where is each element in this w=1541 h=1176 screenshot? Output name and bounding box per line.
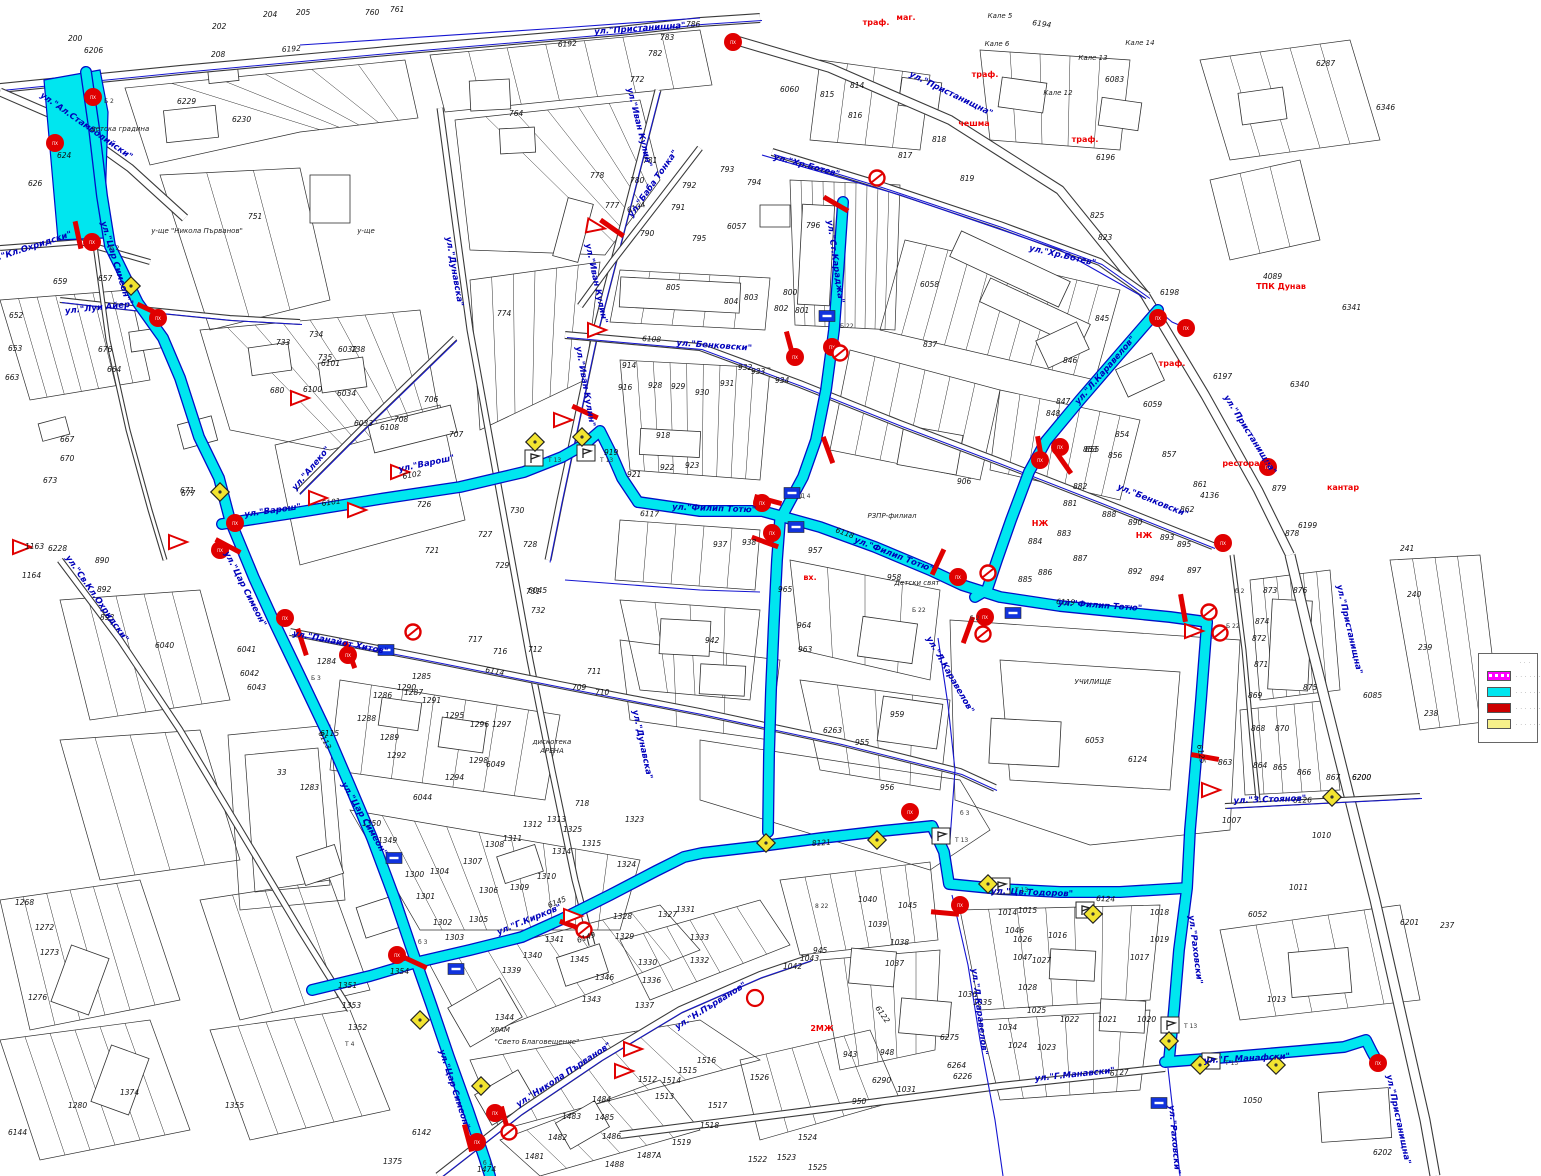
parcel-number: 1324	[617, 860, 636, 869]
parcel-number: 782	[648, 49, 663, 58]
parcel-number: 1340	[523, 951, 542, 960]
parcel-number: 6085	[1363, 691, 1382, 700]
parcel-number: 1353	[342, 1001, 361, 1010]
parcel-number: 1328	[613, 912, 632, 921]
parcel-number: 938	[742, 538, 757, 547]
parcel-number: 890	[1128, 518, 1143, 527]
parcel-number: 819	[960, 174, 975, 183]
parcel-number: 706	[424, 395, 439, 404]
parcel-number: 6346	[1376, 103, 1395, 112]
parcel-number: 887	[1073, 554, 1088, 563]
parcel-number: 870	[1275, 724, 1290, 733]
parcel-number: 793	[720, 165, 735, 174]
parcel-number: 1301	[416, 892, 435, 901]
parcel-number: 718	[575, 799, 590, 808]
building-footprint	[1318, 1088, 1391, 1143]
parcel-number: 6341	[1342, 303, 1361, 312]
parcel-number: 929	[671, 382, 686, 391]
parcel-number: 963	[798, 645, 813, 654]
annotation-note: б 2	[110, 245, 120, 252]
parcel-number: 1276	[28, 993, 47, 1002]
parcel-number: 893	[1160, 533, 1175, 542]
parcel-number: 882	[1073, 482, 1088, 491]
parcel-number: 933	[751, 367, 766, 376]
pipe-id-label: 8121	[812, 838, 832, 848]
building-footprint	[469, 79, 511, 111]
parcel-number: 734	[309, 330, 324, 339]
annotation-note: Т 13	[954, 837, 968, 844]
parcel-number: 730	[510, 506, 525, 515]
parcel-number: 1481	[525, 1152, 544, 1161]
pipe-id-label: 6201	[1400, 918, 1419, 927]
legend-label: · · · · · ·	[1516, 706, 1541, 711]
hydrant-label: ПХ	[474, 1140, 480, 1145]
hydrant-label: ПХ	[1155, 316, 1161, 321]
parcel-number: 1524	[798, 1133, 817, 1142]
parcel-number: 6040	[155, 641, 174, 650]
parcel-number: 875	[1303, 683, 1318, 692]
parcel-number: 772	[630, 75, 645, 84]
parcel-number: 1285	[412, 672, 431, 681]
parcel-number: 792	[682, 181, 697, 190]
parcel-number: 931	[720, 379, 734, 388]
annotation-note: б 2	[970, 615, 980, 622]
diamond-dot	[764, 841, 767, 844]
parcel-number: 6053	[1085, 736, 1104, 745]
poi-red-label: траф.	[863, 18, 890, 27]
parcel-number: 921	[627, 470, 641, 479]
parcel-number: 872	[1252, 634, 1267, 643]
parcel-number: 200	[68, 34, 83, 43]
parcel-number: 1341	[545, 935, 564, 944]
poi-label: Кале 14	[1125, 39, 1154, 47]
parcel-number: 1021	[1098, 1015, 1117, 1024]
pipe-id-label: 6108	[642, 334, 662, 344]
poi-label: у-ще "Никола Първанов"	[150, 227, 243, 235]
building-footprint	[899, 998, 952, 1037]
pipe-id-label: 6196	[1096, 153, 1115, 162]
parcel-number: 1037	[885, 959, 904, 968]
ring-marker[interactable]	[747, 990, 763, 1006]
parcel-number: 1017	[1130, 953, 1149, 962]
legend-swatch	[1487, 703, 1511, 713]
parcel-number: 6197	[1213, 372, 1232, 381]
pipe-id-label: 6192	[282, 44, 302, 54]
parcel-number: 774	[497, 309, 512, 318]
annotation-note: б 3	[960, 810, 970, 817]
pipe-id-label: 6124	[1096, 894, 1116, 904]
parcel-number: 726	[417, 500, 432, 509]
pipe-id-label: 6198	[1160, 288, 1179, 297]
parcel-number: 1516	[697, 1056, 716, 1065]
poi-red-label: вх.	[803, 573, 816, 582]
parcel-number: 6144	[8, 1128, 27, 1137]
parcel-number: 6226	[953, 1072, 972, 1081]
legend-row: · · · · · ·	[1487, 703, 1531, 713]
poi-red-label: кантар	[1327, 483, 1359, 492]
parcel-number: 6057	[727, 222, 746, 231]
parcel-number: 1327	[658, 910, 677, 919]
parcel-number: 1025	[1027, 1006, 1046, 1015]
building-footprint	[699, 664, 746, 696]
parcel-number: 805	[666, 283, 681, 292]
parcel-number: 1022	[1060, 1015, 1079, 1024]
parcel-number: 780	[630, 176, 645, 185]
parcel-number: 1486	[602, 1132, 621, 1141]
parcel-number: 942	[705, 636, 720, 645]
diamond-dot	[986, 882, 989, 885]
parcel-number: 721	[425, 546, 439, 555]
parcel-number: 1488	[605, 1160, 624, 1169]
poi-red-label: НЖ	[1032, 519, 1049, 528]
parcel-number: 663	[5, 373, 20, 382]
parcel-number: 922	[660, 463, 675, 472]
parcel-number: 791	[671, 203, 685, 212]
parcel-number: 6060	[780, 85, 799, 94]
parcel-number: 914	[622, 361, 637, 370]
parcel-number: 732	[531, 606, 546, 615]
parcel-number: 959	[890, 710, 905, 719]
parcel-number: 1330	[638, 958, 657, 967]
parcel-number: 1296	[470, 720, 489, 729]
pipe-id-label: 6192	[558, 39, 578, 49]
parcel-number: 1345	[570, 955, 589, 964]
parcel-number: 894	[1150, 574, 1165, 583]
parcel-number: 6041	[237, 645, 256, 654]
parcel-number: 1007	[1222, 816, 1241, 825]
building-footprint	[1098, 97, 1142, 130]
parcel-number: 783	[660, 33, 675, 42]
legend-swatch	[1487, 671, 1511, 681]
poi-label: Кале 12	[1043, 89, 1073, 97]
poi-red-label: НЖ	[1136, 531, 1153, 540]
parcel-number: 1290	[397, 683, 416, 692]
parcel-number: 626	[28, 179, 43, 188]
parcel-number: 818	[932, 135, 947, 144]
parcel-number: 240	[1407, 590, 1422, 599]
cadastral-map[interactable]: ПХПХПХПХПХПХПХПХПХПХПХПХПХПХПХПХПХПХПХПХ…	[0, 0, 1541, 1176]
parcel-number: 928	[648, 381, 663, 390]
building-footprint	[760, 205, 790, 227]
annotation-note: Т 13	[1224, 1060, 1238, 1067]
parcel-number: 6108	[380, 423, 399, 432]
parcel-number: 884	[1028, 537, 1043, 546]
hydrant-label: ПХ	[730, 40, 736, 45]
parcel-number: 865	[1273, 763, 1288, 772]
building-footprint	[1049, 949, 1096, 981]
parcel-number: 1329	[615, 932, 634, 941]
diamond-dot	[129, 284, 132, 287]
legend-label: · · · · · ·	[1516, 722, 1541, 727]
hydrant-label: ПХ	[1183, 326, 1189, 331]
parcel-number: 6287	[1316, 59, 1335, 68]
pipe-id-label: 6117	[640, 509, 660, 519]
hydrant-label: ПХ	[769, 531, 775, 536]
parcel-number: 6124	[1128, 755, 1147, 764]
parcel-number: 1484	[592, 1095, 611, 1104]
parcel-number: 886	[1038, 568, 1053, 577]
pipe-id-label: 6200	[1352, 773, 1371, 782]
parcel-number: 845	[1095, 314, 1110, 323]
parcel-number: 204	[263, 10, 278, 19]
poi-red-label: ТПК Дунав	[1256, 282, 1306, 291]
parcel-number: 934	[775, 376, 790, 385]
parcel-number: 1028	[1018, 983, 1037, 992]
parcel-number: 1308	[485, 840, 504, 849]
parcel-number: 965	[778, 585, 793, 594]
parcel-number: 871	[1254, 660, 1268, 669]
parcel-number: 906	[957, 477, 972, 486]
hydrant-label: ПХ	[217, 548, 223, 553]
parcel-number: 861	[1193, 480, 1207, 489]
parcel-number: 667	[60, 435, 75, 444]
parcel-number: 881	[1063, 499, 1077, 508]
parcel-number: 1331	[676, 905, 695, 914]
parcel-number: 1375	[383, 1157, 402, 1166]
parcel-number: 727	[478, 530, 493, 539]
annotation-note: Т 4	[344, 1041, 355, 1048]
parcel-number: 711	[587, 667, 601, 676]
parcel-number: 943	[843, 1050, 858, 1059]
poi-red-label: маг.	[896, 13, 915, 22]
parcel-number: 6275	[940, 1033, 959, 1042]
parcel-number: 1163	[25, 542, 44, 551]
hydrant-label: ПХ	[492, 1111, 498, 1116]
parcel-number: 1313	[547, 815, 566, 824]
parcel-number: 1303	[445, 933, 464, 942]
parcel-number: 657	[98, 274, 113, 283]
parcel-number: 1352	[348, 1023, 367, 1032]
parcel-number: 867	[1326, 773, 1341, 782]
parcel-number: 1286	[373, 691, 392, 700]
parcel-number: 1288	[357, 714, 376, 723]
parcel-number: 1312	[523, 820, 542, 829]
diamond-dot	[580, 435, 583, 438]
parcel-number: 795	[692, 234, 707, 243]
parcel-number: 1304	[430, 867, 449, 876]
parcel-number: 956	[880, 783, 895, 792]
parcel-number: 6042	[240, 669, 259, 678]
parcel-number: 6033	[354, 419, 373, 428]
parcel-number: 1023	[1037, 1043, 1056, 1052]
poi-label: РЗПР-филиал	[867, 512, 917, 520]
diamond-dot	[1167, 1039, 1170, 1042]
building-footprint	[499, 127, 535, 154]
parcel-number: 716	[493, 647, 508, 656]
building-footprint	[877, 696, 943, 749]
parcel-number: 955	[855, 738, 870, 747]
hydrant-label: ПХ	[1057, 445, 1063, 450]
parcel-number: 804	[724, 297, 739, 306]
annotation-note: б 3	[418, 939, 428, 946]
annotation-note: б 2	[1235, 588, 1245, 595]
parcel-number: 1300	[405, 870, 424, 879]
parcel-number: 1482	[548, 1133, 567, 1142]
parcel-number: 1047	[1013, 953, 1032, 962]
parcel-number: 4136	[1200, 491, 1219, 500]
diamond-dot	[479, 1084, 482, 1087]
parcel-number: 885	[1018, 575, 1033, 584]
parcel-number: 863	[1218, 758, 1233, 767]
parcel-number: 652	[9, 311, 24, 320]
parcel-number: 817	[898, 151, 913, 160]
hydrant-label: ПХ	[982, 615, 988, 620]
parcel-number: 1019	[1150, 935, 1169, 944]
parcel-number: 1027	[1032, 956, 1051, 965]
poi-label: Детски свят	[894, 579, 941, 587]
parcel-number: 1302	[433, 918, 452, 927]
parcel-number: 6264	[947, 1061, 966, 1070]
parcel-number: 1046	[1005, 926, 1024, 935]
parcel-number: 825	[1090, 211, 1105, 220]
hydrant-label: ПХ	[345, 653, 351, 658]
parcel-number: 709	[572, 683, 587, 692]
parcel-number: 1018	[1150, 908, 1169, 917]
poi-label: Кале 13	[1078, 54, 1107, 62]
parcel-number: 680	[270, 386, 285, 395]
building-footprint	[163, 105, 218, 142]
parcel-number: 1273	[40, 948, 59, 957]
parcel-number: 786	[686, 20, 701, 29]
parcel-number: 6142	[412, 1128, 431, 1137]
parcel-number: 857	[1162, 450, 1177, 459]
parcel-number: 237	[1440, 921, 1455, 930]
parcel-number: 874	[1255, 617, 1270, 626]
building-footprint	[659, 619, 711, 657]
parcel-number: 1523	[777, 1153, 796, 1162]
parcel-number: 923	[685, 461, 700, 470]
parcel-number: 1013	[1267, 995, 1286, 1004]
parcel-number: 1272	[35, 923, 54, 932]
parcel-number: 664	[107, 365, 122, 374]
poi-label: УЧИЛИЩЕ	[1075, 678, 1112, 686]
parcel-number: 1015	[1018, 906, 1037, 915]
parcel-number: 1031	[897, 1085, 916, 1094]
parcel-number: 1311	[503, 834, 522, 843]
parcel-number: 837	[923, 340, 938, 349]
parcel-number: 864	[1253, 761, 1268, 770]
hydrant-label: ПХ	[394, 953, 400, 958]
poi-red-label: траф.	[1159, 359, 1186, 368]
parcel-number: 6100	[303, 385, 322, 394]
parcel-number: 848	[1046, 409, 1061, 418]
parcel-number: 1518	[700, 1121, 719, 1130]
parcel-number: 816	[848, 111, 863, 120]
parcel-number: 1309	[510, 883, 529, 892]
parcel-number: 1526	[750, 1073, 769, 1082]
hydrant-label: ПХ	[907, 810, 913, 815]
parcel-number: 854	[1115, 430, 1130, 439]
parcel-number: 707	[449, 430, 464, 439]
parcel-number: 1337	[635, 1001, 654, 1010]
hydrant-label: ПХ	[957, 903, 963, 908]
parcel-number: 717	[468, 635, 483, 644]
parcel-number: 1517	[708, 1101, 727, 1110]
map-canvas[interactable]: ПХПХПХПХПХПХПХПХПХПХПХПХПХПХПХПХПХПХПХПХ…	[0, 0, 1541, 1176]
parcel-number: 1325	[563, 825, 582, 834]
parcel-number: 6228	[48, 544, 67, 553]
annotation-note: Т 13	[547, 457, 561, 464]
parcel-number: 6044	[413, 793, 432, 802]
parcel-number: 930	[695, 388, 710, 397]
annotation-note: б 1	[483, 1160, 493, 1167]
building-footprint	[1288, 947, 1352, 997]
parcel-number: 794	[747, 178, 762, 187]
parcel-number: 6083	[1105, 75, 1124, 84]
poi-label: "Свето Благовещение"	[495, 1038, 580, 1046]
legend-swatch	[1487, 687, 1511, 697]
parcel-number: 1485	[595, 1113, 614, 1122]
parcel-number: 1332	[690, 956, 709, 965]
building-footprint	[857, 616, 917, 663]
parcel-number: 964	[797, 621, 812, 630]
parcel-number: 1011	[1289, 883, 1308, 892]
parcel-number: 738	[351, 345, 366, 354]
diamond-dot	[1198, 1063, 1201, 1066]
parcel-number: 6058	[920, 280, 939, 289]
parcel-number: 1307	[463, 857, 482, 866]
parcel-number: 1039	[868, 920, 887, 929]
annotation-note: Б 3	[311, 675, 321, 682]
poi-label: Кале 6	[985, 40, 1010, 48]
parcel-number: 1344	[495, 1013, 514, 1022]
hydrant-label: ПХ	[955, 575, 961, 580]
parcel-number: 1040	[858, 895, 877, 904]
parcel-number: 918	[656, 431, 671, 440]
hydrant-label: ПХ	[1375, 1061, 1381, 1066]
parcel-number: 1310	[537, 872, 556, 881]
parcel-number: 4089	[1263, 272, 1282, 281]
parcel-number: 1314	[552, 847, 571, 856]
parcel-number: 1295	[445, 711, 464, 720]
parcel-number: 800	[783, 288, 798, 297]
parcel-number: 624	[57, 151, 72, 160]
parcel-number: 890	[95, 556, 110, 565]
building-footprint	[1238, 87, 1287, 125]
legend-swatch	[1487, 719, 1511, 729]
pipe-id-label: 6202	[1373, 1148, 1392, 1157]
parcel-number: 796	[806, 221, 821, 230]
parcel-number: 945	[813, 946, 828, 955]
parcel-number: 238	[1424, 709, 1439, 718]
parcel-number: 847	[1056, 397, 1071, 406]
hydrant-label: ПХ	[52, 141, 58, 146]
parcel-number: 6043	[247, 683, 266, 692]
parcel-number: 239	[1418, 643, 1433, 652]
annotation-note: Д 4	[800, 493, 811, 500]
parcel-number: 1283	[300, 783, 319, 792]
legend-label: · · · · · · ·	[1516, 674, 1541, 679]
parcel-number: 764	[509, 109, 524, 118]
poi-red-label: 2МЖ	[810, 1024, 834, 1033]
parcel-number: 876	[1293, 586, 1308, 595]
parcel-number: 883	[1057, 529, 1072, 538]
map-legend: · · ·· · · · · · ·· · · · · ·· · · · · ·…	[1478, 653, 1538, 743]
parcel-number: 241	[1400, 544, 1414, 553]
poi-red-label: ресторант	[1222, 459, 1270, 468]
parcel-number: 957	[808, 546, 823, 555]
annotation-note: 8 22	[815, 903, 829, 910]
poi-label: АРЕНА	[539, 747, 564, 755]
parcel-number: 1043	[800, 954, 819, 963]
parcel-number: 1014	[998, 908, 1017, 917]
parcel-number: 1280	[68, 1101, 87, 1110]
parcel-number: 1351	[338, 981, 357, 990]
parcel-number: 6290	[872, 1076, 891, 1085]
parcel-number: 1354	[390, 967, 409, 976]
hydrant-label: ПХ	[759, 501, 765, 506]
parcel-number: 1164	[22, 571, 41, 580]
